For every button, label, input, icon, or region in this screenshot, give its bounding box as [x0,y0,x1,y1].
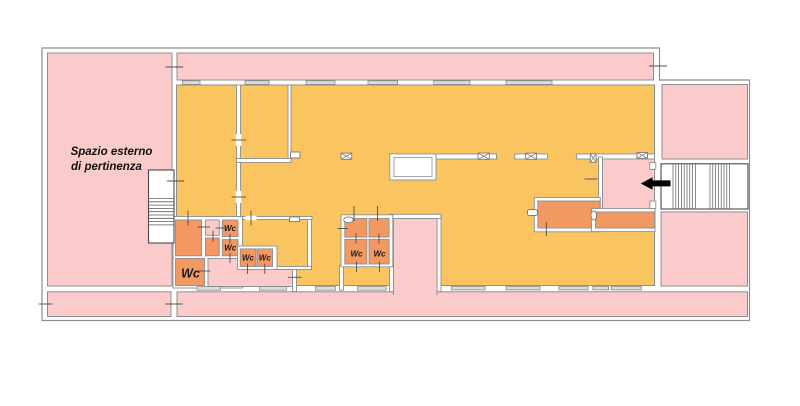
svg-text:Wc: Wc [259,254,272,263]
svg-text:Wc: Wc [224,224,237,233]
svg-text:Wc: Wc [242,254,255,263]
svg-text:Wc: Wc [374,250,387,259]
svg-text:di pertinenza: di pertinenza [71,161,143,173]
svg-text:Wc: Wc [181,267,200,281]
svg-text:Wc: Wc [224,244,237,253]
svg-text:Spazio esterno: Spazio esterno [71,146,153,158]
svg-text:Wc: Wc [351,250,364,259]
